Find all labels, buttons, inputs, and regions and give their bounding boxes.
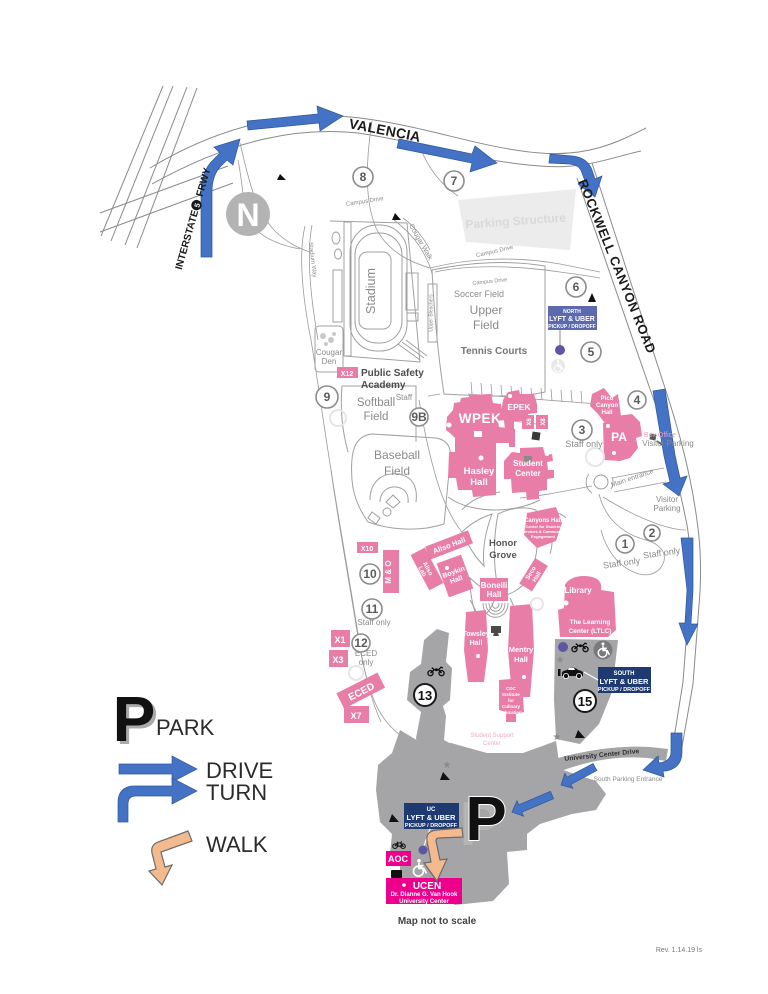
svg-text:Hasley: Hasley bbox=[464, 466, 495, 477]
svg-text:Honor: Honor bbox=[489, 538, 517, 549]
svg-text:9B: 9B bbox=[411, 410, 427, 424]
svg-text:CDC: CDC bbox=[506, 686, 516, 691]
svg-text:12: 12 bbox=[354, 636, 368, 650]
svg-text:UCEN: UCEN bbox=[413, 881, 441, 892]
svg-text:TURN: TURN bbox=[206, 780, 267, 805]
svg-text:Public Safety: Public Safety bbox=[361, 368, 424, 379]
svg-text:Institute: Institute bbox=[502, 692, 520, 697]
svg-text:PICKUP / DROPOFF: PICKUP / DROPOFF bbox=[548, 324, 595, 330]
svg-text:The Learning: The Learning bbox=[570, 619, 611, 626]
svg-text:Center (LTLC): Center (LTLC) bbox=[569, 628, 612, 635]
svg-text:Map not to scale: Map not to scale bbox=[398, 916, 477, 927]
svg-text:X10: X10 bbox=[361, 546, 374, 553]
svg-text:PARK: PARK bbox=[156, 715, 215, 740]
svg-text:1: 1 bbox=[622, 537, 629, 551]
svg-text:Hall: Hall bbox=[470, 640, 483, 647]
svg-text:PICKUP / DROPOFF: PICKUP / DROPOFF bbox=[405, 823, 458, 829]
svg-text:Hall: Hall bbox=[514, 655, 528, 664]
svg-text:Box Office: Box Office bbox=[644, 432, 676, 439]
svg-text:Parking: Parking bbox=[653, 504, 680, 513]
svg-text:Softball: Softball bbox=[357, 397, 395, 409]
svg-text:Cougar: Cougar bbox=[316, 348, 343, 357]
svg-text:PICKUP / DROPOFF: PICKUP / DROPOFF bbox=[598, 687, 651, 693]
svg-text:Baseball: Baseball bbox=[374, 448, 420, 462]
svg-text:Center: Center bbox=[515, 469, 540, 478]
svg-text:Academy: Academy bbox=[361, 380, 406, 391]
svg-text:Hall: Hall bbox=[487, 590, 502, 599]
svg-text:X12: X12 bbox=[341, 371, 354, 378]
svg-text:Field: Field bbox=[384, 464, 410, 478]
svg-text:for: for bbox=[508, 698, 514, 703]
svg-text:Dr. Dianne G. Van Hook: Dr. Dianne G. Van Hook bbox=[391, 892, 458, 898]
svg-text:Upper: Upper bbox=[470, 303, 503, 317]
svg-text:★: ★ bbox=[443, 760, 452, 771]
svg-text:Rev. 1.14.19 ls: Rev. 1.14.19 ls bbox=[656, 947, 703, 954]
svg-text:Hall: Hall bbox=[601, 410, 612, 416]
svg-text:Student Support: Student Support bbox=[470, 733, 514, 739]
svg-text:WALK: WALK bbox=[206, 832, 268, 857]
svg-text:Soccer Field: Soccer Field bbox=[454, 289, 504, 299]
svg-text:Field: Field bbox=[473, 318, 499, 332]
svg-text:X3: X3 bbox=[332, 655, 343, 665]
svg-text:X8: X8 bbox=[541, 418, 547, 426]
svg-text:Tennis Courts: Tennis Courts bbox=[461, 346, 528, 357]
svg-text:10: 10 bbox=[363, 567, 377, 581]
svg-text:Student: Student bbox=[513, 459, 543, 468]
svg-text:Field: Field bbox=[364, 411, 389, 423]
svg-text:Grove: Grove bbox=[489, 550, 516, 561]
svg-text:★: ★ bbox=[556, 655, 565, 666]
svg-text:X1: X1 bbox=[334, 635, 345, 645]
svg-text:X7: X7 bbox=[350, 711, 361, 721]
svg-text:Bonelli: Bonelli bbox=[481, 581, 508, 590]
svg-text:11: 11 bbox=[366, 602, 379, 616]
svg-text:Hall: Hall bbox=[470, 477, 487, 488]
svg-text:Library: Library bbox=[564, 586, 592, 595]
svg-text:NORTH: NORTH bbox=[563, 309, 581, 315]
svg-text:Center: Center bbox=[483, 741, 501, 747]
svg-text:AOC: AOC bbox=[388, 854, 409, 864]
svg-text:LYFT & UBER: LYFT & UBER bbox=[549, 316, 595, 323]
svg-text:only: only bbox=[359, 658, 374, 667]
svg-text:University Center: University Center bbox=[399, 899, 449, 905]
svg-text:Engagement: Engagement bbox=[531, 534, 556, 539]
svg-text:Staff: Staff bbox=[396, 393, 413, 402]
svg-text:6: 6 bbox=[573, 280, 580, 294]
svg-text:Education: Education bbox=[500, 710, 522, 715]
svg-text:8: 8 bbox=[360, 170, 367, 184]
svg-text:Pico: Pico bbox=[601, 396, 614, 402]
svg-text:5: 5 bbox=[588, 345, 595, 359]
svg-text:N: N bbox=[236, 197, 259, 233]
svg-text:Mentry: Mentry bbox=[509, 645, 534, 654]
svg-text:2: 2 bbox=[649, 526, 656, 540]
svg-text:PA: PA bbox=[611, 430, 627, 444]
svg-text:3: 3 bbox=[579, 423, 586, 437]
svg-text:P: P bbox=[113, 683, 156, 755]
svg-text:Visitor: Visitor bbox=[656, 495, 678, 504]
svg-text:Upper Bleachers: Upper Bleachers bbox=[429, 294, 435, 332]
svg-text:Den: Den bbox=[322, 357, 337, 366]
svg-text:Visitor Parking: Visitor Parking bbox=[642, 439, 693, 448]
svg-text:WPEK: WPEK bbox=[459, 411, 502, 426]
svg-text:15: 15 bbox=[578, 694, 592, 709]
svg-text:7: 7 bbox=[451, 174, 458, 188]
svg-text:EPEK: EPEK bbox=[507, 402, 531, 412]
svg-text:9: 9 bbox=[324, 390, 331, 404]
svg-text:LYFT & UBER: LYFT & UBER bbox=[407, 813, 456, 822]
svg-text:P: P bbox=[465, 785, 506, 854]
svg-text:Towsley: Towsley bbox=[462, 631, 489, 638]
svg-text:Stadium: Stadium bbox=[364, 268, 378, 314]
svg-text:M & O: M & O bbox=[384, 560, 393, 583]
svg-text:★: ★ bbox=[553, 732, 562, 743]
svg-text:X6: X6 bbox=[527, 418, 533, 426]
svg-text:Culinary: Culinary bbox=[502, 704, 521, 709]
svg-text:LYFT & UBER: LYFT & UBER bbox=[600, 677, 649, 686]
svg-text:4: 4 bbox=[634, 393, 641, 407]
svg-text:Canyon: Canyon bbox=[596, 403, 618, 409]
svg-text:South Parking Entrance: South Parking Entrance bbox=[594, 776, 663, 783]
svg-text:13: 13 bbox=[418, 688, 432, 703]
